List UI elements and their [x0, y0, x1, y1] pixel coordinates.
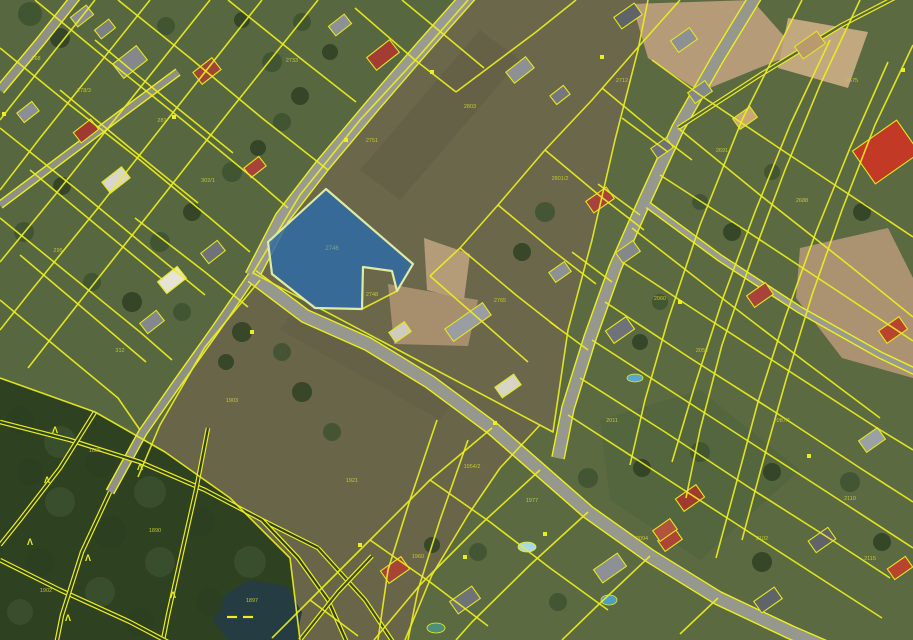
survey-marker — [358, 543, 362, 547]
tree-canopy — [535, 202, 555, 222]
survey-marker — [600, 55, 604, 59]
parcel-number-label: 1954/2 — [464, 464, 481, 470]
survey-marker — [901, 68, 905, 72]
parcel-number-label: 1897 — [246, 598, 258, 604]
pool — [427, 623, 445, 633]
parcel-number-label: 2748 — [366, 292, 378, 298]
survey-marker — [344, 138, 348, 142]
survey-marker — [2, 112, 6, 116]
conifer-symbol: Λ — [137, 462, 143, 472]
parcel-number-label: 2688 — [796, 198, 808, 204]
parcel-number-label: 302/1 — [201, 178, 215, 184]
parcel-number-label: 2110 — [844, 496, 856, 502]
parcel-number-label: 2094 — [636, 536, 648, 542]
parcel-number-label: 1890 — [149, 528, 161, 534]
parcel-number-label: 2691 — [716, 148, 728, 154]
tree-canopy — [763, 463, 781, 481]
parcel-number-label: 268 — [31, 56, 40, 62]
parcel-number-label: 2803 — [464, 104, 476, 110]
tree-canopy — [222, 162, 242, 182]
parcel-number-label: 2801/2 — [552, 176, 569, 182]
conifer-symbol: Λ — [27, 537, 33, 547]
tree-canopy — [273, 343, 291, 361]
tree-canopy — [323, 423, 341, 441]
tree-canopy — [262, 52, 282, 72]
parcel-number-label: 1903 — [226, 398, 238, 404]
survey-marker — [493, 421, 497, 425]
tree-canopy — [134, 476, 166, 508]
tree-canopy — [26, 548, 54, 576]
parcel-number-label: 1977 — [526, 498, 538, 504]
parcel-number-label: 2712 — [616, 78, 628, 84]
survey-marker — [543, 532, 547, 536]
tree-canopy — [873, 533, 891, 551]
tree-canopy — [292, 382, 312, 402]
tree-canopy — [17, 459, 43, 485]
tree-canopy — [18, 2, 42, 26]
tree-canopy — [196, 588, 224, 616]
tree-canopy — [232, 322, 252, 342]
tree-canopy — [322, 44, 338, 60]
tree-canopy — [578, 468, 598, 488]
tree-canopy — [513, 243, 531, 261]
tree-canopy — [218, 354, 234, 370]
conifer-symbol: Λ — [52, 425, 58, 435]
survey-marker — [807, 454, 811, 458]
cadastral-map-canvas[interactable]: 2746ΛΛΛΛΛΛΛ278/3281295302/13122682733275… — [0, 0, 913, 640]
parcel-number-label: 2052 — [696, 348, 708, 354]
survey-marker — [430, 70, 434, 74]
parcel-number-label: 2102 — [756, 536, 768, 542]
parcel-number-label: 2765 — [494, 298, 506, 304]
survey-marker — [463, 555, 467, 559]
tree-canopy — [291, 87, 309, 105]
tree-canopy — [183, 203, 201, 221]
map-viewport[interactable]: 2746ΛΛΛΛΛΛΛ278/3281295302/13122682733275… — [0, 0, 913, 640]
tree-canopy — [853, 203, 871, 221]
tree-canopy — [633, 459, 651, 477]
parcel-number-label: 2060 — [654, 296, 666, 302]
tree-canopy — [632, 334, 648, 350]
parcel-number-label: 1902 — [40, 588, 52, 594]
conifer-symbol: Λ — [44, 475, 50, 485]
conifer-symbol: Λ — [85, 553, 91, 563]
tree-canopy — [840, 472, 860, 492]
survey-marker — [172, 115, 176, 119]
tree-canopy — [469, 543, 487, 561]
tree-canopy — [752, 552, 772, 572]
tree-canopy — [7, 599, 33, 625]
tree-canopy — [145, 547, 175, 577]
survey-marker — [250, 330, 254, 334]
parcel-number-label: 2011 — [606, 418, 618, 424]
conifer-symbol: Λ — [170, 590, 176, 600]
parcel-number-label: 2087/1 — [774, 418, 791, 424]
tree-canopy — [764, 164, 780, 180]
tree-canopy — [549, 593, 567, 611]
tree-canopy — [45, 487, 75, 517]
tree-canopy — [234, 546, 266, 578]
parcel-number-label: 1960 — [412, 554, 424, 560]
parcel-number-label: 2751 — [366, 138, 378, 144]
parcel-number-label: 2675 — [846, 78, 858, 84]
parcel-number-label: 2733 — [286, 58, 298, 64]
tree-canopy — [173, 303, 191, 321]
parcel-number-label: 278/3 — [77, 88, 91, 94]
tree-canopy — [250, 140, 266, 156]
parcel-number-label: 1921 — [346, 478, 358, 484]
pool — [627, 374, 643, 382]
conifer-symbol: Λ — [65, 613, 71, 623]
parcel-number-label: 312 — [115, 348, 124, 354]
tree-canopy — [157, 17, 175, 35]
parcel-number-label: 281 — [157, 118, 166, 124]
tree-canopy — [122, 292, 142, 312]
parcel-number-label: 295 — [53, 248, 62, 254]
parcel-number-label: 2115 — [864, 556, 876, 562]
survey-marker — [678, 300, 682, 304]
parcel-number-label: 1885 — [89, 448, 101, 454]
selected-parcel-number-label: 2746 — [325, 246, 339, 252]
